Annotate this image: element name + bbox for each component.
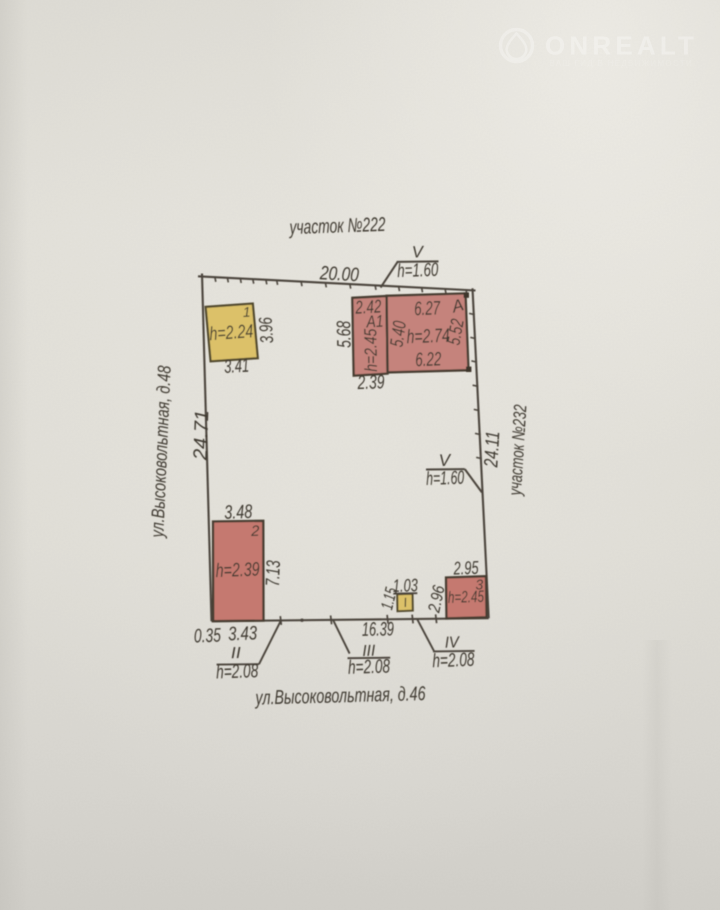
- svg-text:h=2.24: h=2.24: [209, 321, 254, 345]
- svg-text:h=2.39: h=2.39: [215, 559, 260, 583]
- svg-text:1: 1: [242, 304, 251, 320]
- svg-text:участок №222: участок №222: [288, 214, 386, 239]
- svg-text:7.13: 7.13: [262, 560, 285, 587]
- svg-text:h=2.08: h=2.08: [216, 660, 259, 683]
- svg-text:ВАШ ГИД В НЕДВИЖИМОСТИ: ВАШ ГИД В НЕДВИЖИМОСТИ: [549, 59, 693, 68]
- svg-text:h=1.60: h=1.60: [397, 260, 439, 282]
- svg-text:0.35: 0.35: [194, 625, 222, 648]
- svg-text:3.41: 3.41: [224, 355, 250, 378]
- svg-text:II: II: [231, 645, 242, 662]
- svg-text:3.48: 3.48: [224, 501, 253, 524]
- svg-text:6.22: 6.22: [415, 348, 442, 371]
- svg-text:5.68: 5.68: [333, 321, 355, 348]
- svg-text:h=2.45: h=2.45: [360, 328, 381, 372]
- svg-text:24.11: 24.11: [480, 431, 504, 469]
- svg-text:h=1.60: h=1.60: [426, 468, 465, 490]
- svg-text:2.95: 2.95: [452, 557, 479, 579]
- svg-text:3.96: 3.96: [254, 316, 277, 344]
- svg-text:ул.Высоковольтная, д.46: ул.Высоковольтная, д.46: [254, 683, 427, 709]
- svg-text:h=2.08: h=2.08: [432, 649, 475, 672]
- svg-text:2: 2: [250, 523, 261, 540]
- svg-text:20.00: 20.00: [319, 262, 360, 286]
- svg-text:h=2.45: h=2.45: [448, 588, 485, 607]
- svg-text:6.27: 6.27: [414, 297, 442, 320]
- svg-text:А1: А1: [365, 312, 384, 332]
- svg-text:h=2.08: h=2.08: [348, 655, 391, 678]
- svg-text:ONREALT: ONREALT: [545, 31, 698, 61]
- svg-text:3.43: 3.43: [228, 622, 258, 645]
- svg-text:2.39: 2.39: [356, 371, 385, 394]
- svg-text:16.39: 16.39: [362, 618, 394, 641]
- svg-text:24.71: 24.71: [190, 410, 214, 462]
